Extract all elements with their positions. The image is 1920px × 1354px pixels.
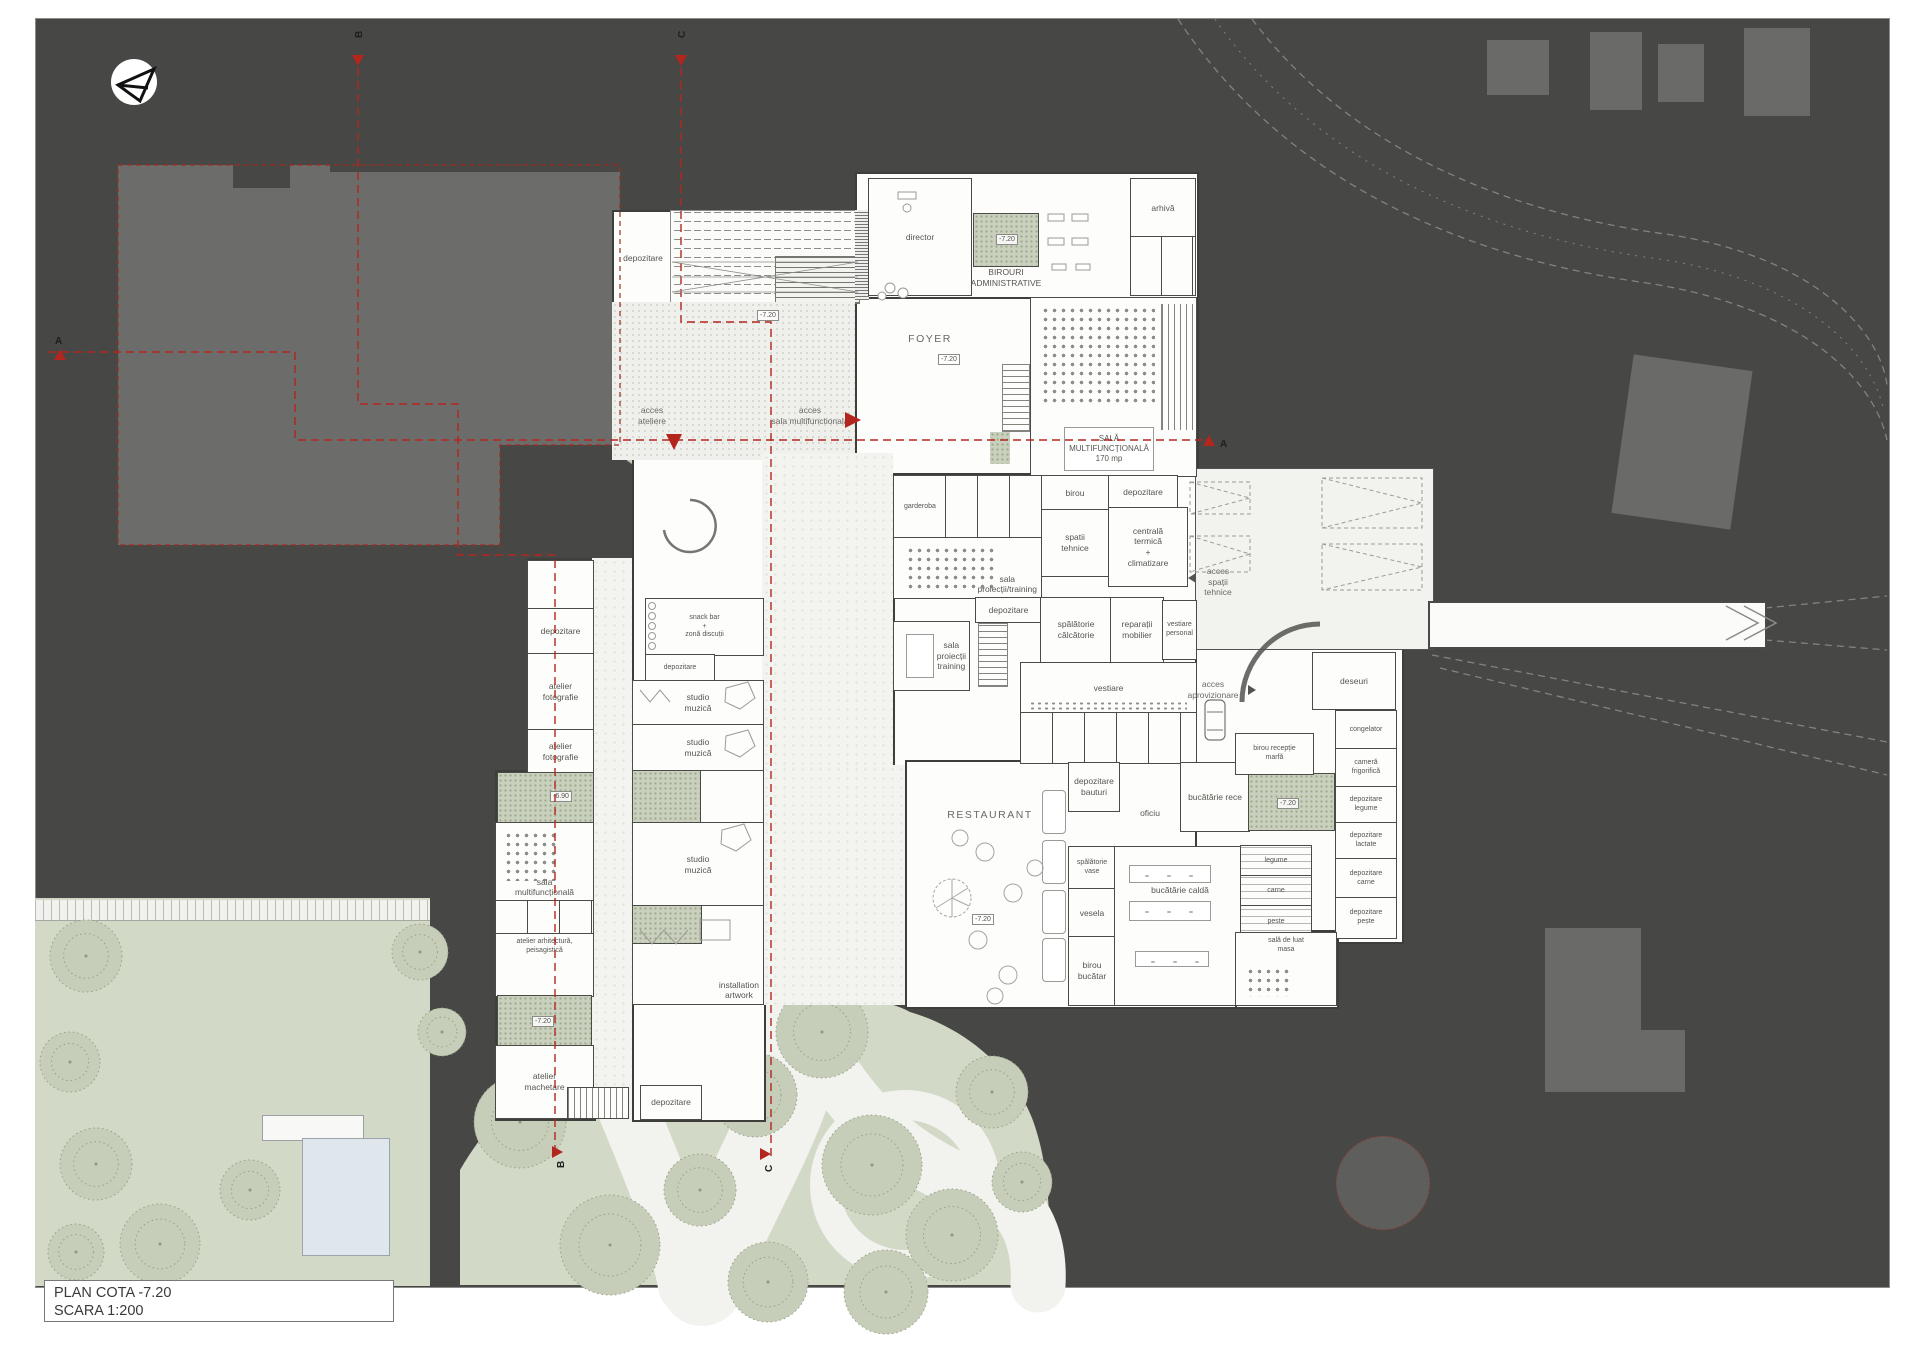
courtyard-kitchen: -7.20 xyxy=(1248,773,1335,831)
site-building xyxy=(1744,28,1810,116)
room-sala-masa: sală de luat masa xyxy=(1235,932,1337,1006)
room-atelier-foto-2: atelier fotografie xyxy=(527,729,594,774)
room-label: sală de luat masa xyxy=(1236,933,1336,1005)
grille-wall xyxy=(855,210,869,300)
room-carne: carne xyxy=(1240,875,1312,907)
room-label: vestiare personal xyxy=(1163,601,1196,659)
room-atelier-arhitectura: atelier arhitectură, peisagistică xyxy=(495,933,594,997)
walkway-central xyxy=(762,453,893,765)
room-studio-3: studio muzică xyxy=(632,822,764,907)
courtyard-west-2: -7.20 xyxy=(497,995,592,1047)
site-building xyxy=(1545,1030,1685,1092)
hall-stair xyxy=(1161,304,1194,430)
room-studio-annex xyxy=(700,770,764,824)
level-tag: -7.20 xyxy=(972,914,994,925)
garden-pergola-strip xyxy=(35,900,430,921)
site-circular-structure xyxy=(1336,1136,1430,1230)
existing-building xyxy=(330,445,500,545)
room-wc-vestiare xyxy=(1020,712,1197,764)
room-label: snack bar + zonă discuții xyxy=(646,599,763,655)
room-snack-bar: snack bar + zonă discuții xyxy=(645,598,764,656)
room-reparatii-mobilier: reparații mobilier xyxy=(1110,597,1164,663)
room-deseuri: deseuri xyxy=(1312,652,1396,710)
room-label: studio muzică xyxy=(633,725,763,771)
room-label: deseuri xyxy=(1313,653,1395,709)
level-tag: -7.20 xyxy=(1277,798,1299,809)
site-building xyxy=(1611,354,1752,529)
room-label: centrală termică + climatizare xyxy=(1109,508,1187,586)
existing-building-notch xyxy=(233,160,290,188)
room-depozitare-canopy: depozitare xyxy=(612,210,674,306)
room-wc-admin xyxy=(1130,236,1196,296)
room-label: depozitare xyxy=(614,212,672,304)
room-unlabeled-west xyxy=(527,560,594,610)
north-arrow-icon xyxy=(110,58,158,106)
room-director: director xyxy=(868,178,972,296)
level-tag: -7.20 xyxy=(757,310,779,321)
room-label: depozitare carne xyxy=(1336,859,1396,898)
room-label: atelier fotografie xyxy=(528,654,593,730)
level-tag: -7.20 xyxy=(532,1016,554,1027)
room-label: depozitare pește xyxy=(1336,898,1396,938)
room-sala-training: sala proiecții training xyxy=(893,621,970,691)
room-label: atelier arhitectură, peisagistică xyxy=(496,934,593,996)
room-label-oficiu: oficiu xyxy=(1120,806,1180,820)
room-depozitare-snack: depozitare xyxy=(645,654,715,682)
courtyard-east-2 xyxy=(632,905,702,944)
room-depozitare-mid: depozitare xyxy=(975,597,1042,623)
booth-seat xyxy=(1042,790,1066,834)
foyer-planter xyxy=(990,432,1010,464)
room-sala-multi-west: sala multifuncțională xyxy=(495,822,594,902)
room-label: carne xyxy=(1241,876,1311,906)
room-dep-carne: depozitare carne xyxy=(1335,858,1397,899)
service-yard xyxy=(1195,468,1434,650)
room-label: vesela xyxy=(1069,889,1115,937)
room-vesela: vesela xyxy=(1068,888,1116,938)
room-depozitare-bauturi: depozitare bauturi xyxy=(1068,762,1120,812)
room-label: studio muzică xyxy=(633,681,763,725)
kitchen-island xyxy=(1135,951,1209,967)
room-birou-receptie: birou recepție marfă xyxy=(1235,733,1314,775)
kitchen-island xyxy=(1129,901,1211,921)
walkway-south xyxy=(762,765,905,1005)
room-label-sala-multi: SALĂ MULTIFUNCȚIONALĂ 170 mp xyxy=(1064,427,1154,471)
room-label: bucătărie caldă xyxy=(1135,883,1225,897)
room-label: sala proiecții training xyxy=(894,622,969,690)
walkway-west xyxy=(592,558,632,1118)
room-arhiva: arhivă xyxy=(1130,178,1196,238)
room-depozitare-jos: depozitare xyxy=(640,1085,702,1120)
room-label: spălătorie vase xyxy=(1069,847,1115,889)
stair-south xyxy=(567,1087,629,1119)
room-label: legume xyxy=(1241,846,1311,876)
existing-building xyxy=(330,172,620,445)
room-label: depozitare legume xyxy=(1336,787,1396,823)
booth-seat xyxy=(1042,840,1066,884)
room-label-restaurant: RESTAURANT xyxy=(940,808,1040,824)
level-tag: -6.90 xyxy=(550,791,572,802)
room-depozitare-west: depozitare xyxy=(527,608,594,655)
room-label: sala proiecții/training xyxy=(894,538,1041,598)
tree-icon xyxy=(885,1291,888,1294)
room-label: congelator xyxy=(1336,711,1396,749)
room-centrala-termica: centrală termică + climatizare xyxy=(1108,507,1188,587)
room-vestiare-personal: vestiare personal xyxy=(1162,600,1197,660)
annotation-acces-tehnice: acces spații tehnice xyxy=(1196,562,1240,602)
room-label: studio muzică xyxy=(633,823,763,906)
room-legume: legume xyxy=(1240,845,1312,877)
room-sala-multifunctionala: SALĂ MULTIFUNCȚIONALĂ 170 mp xyxy=(1030,297,1197,477)
lockers xyxy=(1029,701,1187,710)
room-label: garderoba xyxy=(894,476,946,538)
room-label: depozitare xyxy=(976,598,1041,622)
room-sala-proiectii: sala proiecții/training xyxy=(893,537,1042,599)
plan-scale: SCARA 1:200 xyxy=(54,1302,384,1320)
site-building xyxy=(1487,40,1549,95)
annotation-acces-ateliere: acces ateliere xyxy=(630,403,674,429)
courtyard-west-1: -6.90 xyxy=(497,772,594,824)
room-label: birou bucătar xyxy=(1069,937,1115,1005)
plaza xyxy=(612,302,855,460)
room-garderoba: garderoba xyxy=(893,475,947,539)
level-tag: -7.20 xyxy=(938,354,960,365)
room-studio-1: studio muzică xyxy=(632,680,764,726)
canopy-louvers xyxy=(775,256,860,304)
room-label: atelier fotografie xyxy=(528,730,593,773)
room-label: spălătorie călcătorie xyxy=(1041,598,1111,662)
room-vestiare: vestiare xyxy=(1020,662,1197,714)
level-tag: -7.20 xyxy=(996,234,1018,245)
room-birou-bucatar: birou bucătar xyxy=(1068,936,1116,1006)
room-depozitare-scena: depozitare xyxy=(1108,475,1178,509)
plan-title: PLAN COTA -7.20 xyxy=(54,1284,384,1302)
site-building xyxy=(1590,32,1642,110)
room-wc-foyer xyxy=(945,475,1042,539)
room-label: sala multifuncțională xyxy=(496,823,593,901)
room-label: birou recepție marfă xyxy=(1236,734,1313,774)
site-building xyxy=(1658,44,1704,102)
room-label: spatii tehnice xyxy=(1041,510,1109,576)
courtyard-admin: -7.20 xyxy=(973,213,1039,267)
annotation-acces-sala: acces sala multifunctionala xyxy=(762,403,858,429)
room-label: depozitare lactate xyxy=(1336,823,1396,859)
booth-seat xyxy=(1042,890,1066,934)
annotation-acces-aprovizionare: acces aprovizionare xyxy=(1178,676,1248,704)
floor-plan-sheet: depozitare acces ateliere acces sala mul… xyxy=(0,0,1920,1354)
room-spalatorie-calcatorie: spălătorie călcătorie xyxy=(1040,597,1112,663)
kitchen-island xyxy=(1129,865,1211,883)
room-congelator: congelator xyxy=(1335,710,1397,750)
foyer-stair xyxy=(1002,364,1030,432)
room-label: birou xyxy=(1041,476,1109,510)
room-birou: birou xyxy=(1040,475,1110,511)
hall-seating xyxy=(1041,306,1155,406)
stair xyxy=(978,623,1008,687)
existing-building xyxy=(118,165,330,545)
room-camera-frigorifica: cameră frigorifică xyxy=(1335,748,1397,788)
room-label: depozitare xyxy=(646,655,714,681)
pool xyxy=(302,1138,390,1256)
room-bucatarie-calda: bucătărie caldă xyxy=(1114,846,1247,1006)
room-label: director xyxy=(869,179,971,295)
room-label: cameră frigorifică xyxy=(1336,749,1396,787)
room-label: arhivă xyxy=(1131,179,1195,237)
room-label: depozitare xyxy=(1109,476,1177,508)
room-dep-peste: depozitare pește xyxy=(1335,897,1397,939)
room-studio-2: studio muzică xyxy=(632,724,764,772)
room-spalatorie-vase: spălătorie vase xyxy=(1068,846,1116,890)
room-label: depozitare xyxy=(528,609,593,654)
room-spatii-tehnice: spatii tehnice xyxy=(1040,509,1110,577)
room-dep-legume: depozitare legume xyxy=(1335,786,1397,824)
room-label: reparații mobilier xyxy=(1111,598,1163,662)
room-atelier-foto-1: atelier fotografie xyxy=(527,653,594,731)
room-label-foyer: FOYER xyxy=(895,332,965,348)
supply-corridor xyxy=(1428,601,1767,649)
room-dep-lactate: depozitare lactate xyxy=(1335,822,1397,860)
title-block: PLAN COTA -7.20 SCARA 1:200 xyxy=(44,1280,394,1322)
room-label: depozitare xyxy=(641,1086,701,1119)
courtyard-east-1 xyxy=(632,770,702,824)
room-label: depozitare bauturi xyxy=(1069,763,1119,811)
booth-seat xyxy=(1042,938,1066,982)
room-label-birouri-administrative: BIROURI ADMINISTRATIVE xyxy=(958,266,1054,290)
room-wc-west xyxy=(495,900,594,935)
